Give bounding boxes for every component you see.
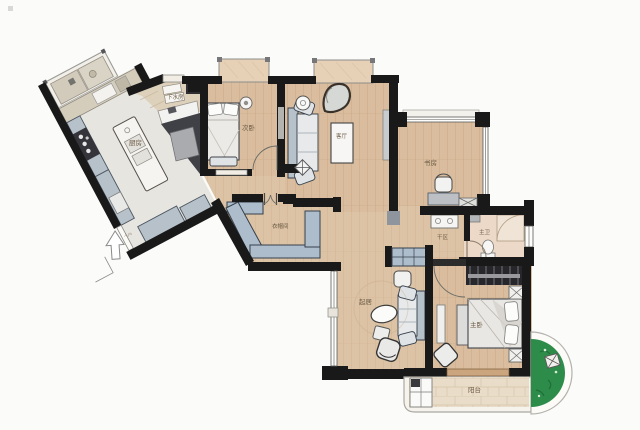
svg-text:厨房: 厨房 bbox=[129, 138, 142, 147]
svg-text:阳台: 阳台 bbox=[468, 385, 481, 394]
svg-text:主卧: 主卧 bbox=[470, 320, 484, 329]
svg-text:次卧: 次卧 bbox=[242, 123, 256, 132]
svg-text:入户: 入户 bbox=[124, 231, 132, 237]
svg-text:书房: 书房 bbox=[424, 158, 437, 167]
svg-text:客厅: 客厅 bbox=[336, 132, 348, 140]
svg-text:下水房: 下水房 bbox=[167, 93, 184, 101]
svg-text:衣帽间: 衣帽间 bbox=[272, 222, 289, 230]
svg-text:主卫: 主卫 bbox=[479, 228, 491, 236]
svg-text:干区: 干区 bbox=[437, 234, 449, 241]
svg-text:起居: 起居 bbox=[359, 298, 373, 306]
